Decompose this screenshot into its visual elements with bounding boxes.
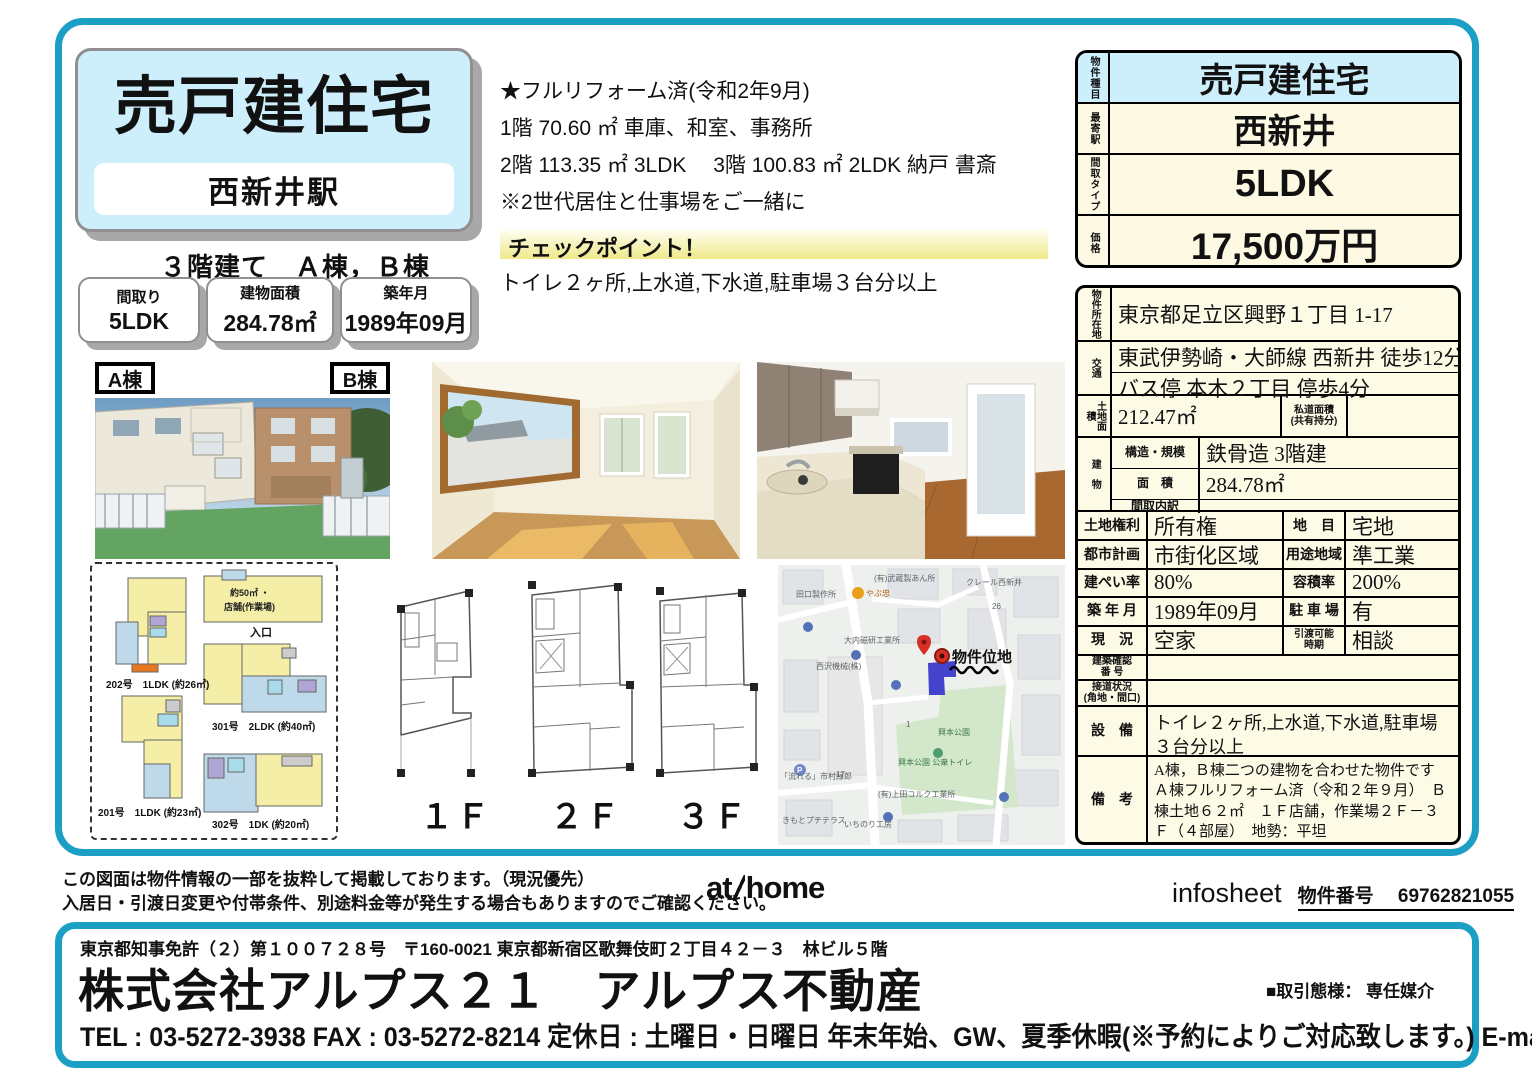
row-label: 交通 (1078, 342, 1112, 394)
land-rights: 所有権 (1148, 512, 1284, 539)
structure-value: 鉄骨造 3階建 (1200, 438, 1458, 468)
table-row: 接道状況 (角地・間口) (1078, 681, 1458, 707)
row-label: 土地権利 (1078, 512, 1148, 539)
disclaimer-line-1: この図面は物件情報の一部を抜粋して掲載しております。（現況優先） (62, 868, 776, 892)
photo-kitchen (757, 362, 1065, 559)
structure-label: 構造・規模 (1112, 438, 1200, 468)
infosheet-line: infosheet 物件番号 69762821055 (1172, 878, 1514, 911)
spec-value: 1989年09月 (345, 304, 468, 338)
checkpoint-banner: チェックポイント！ (500, 229, 1048, 259)
map-label: (有)上田コルク工業所 (878, 789, 955, 799)
table-row: 建ぺい率 80% 容積率 200% (1078, 570, 1458, 598)
spec-box-built: 築年月 1989年09月 (340, 277, 472, 343)
row-label: 用途地域 (1284, 541, 1346, 568)
row-label: 備 考 (1078, 757, 1148, 842)
exterior-photo-svg (95, 398, 390, 559)
row-label: 物件所在地 (1078, 288, 1112, 340)
row-label: 築 年 月 (1078, 598, 1148, 625)
feature-line: ★フルリフォーム済(令和2年9月) (500, 75, 1060, 112)
spec-value: 5LDK (109, 308, 169, 335)
confirm-number-label: 建築確認 番 号 (1078, 656, 1148, 680)
table-row: 設 備 トイレ２ヶ所,上水道,下水道,駐車場３台分以上 (1078, 707, 1458, 757)
photo-interior-room (432, 362, 740, 559)
row-label: 物件種目 (1078, 53, 1110, 102)
map-label: 26 (992, 602, 1001, 611)
road-contact (1148, 681, 1458, 705)
table-row: 築 年 月 1989年09月 駐 車 場 有 (1078, 598, 1458, 627)
floor-label-3f: ３Ｆ (677, 790, 749, 838)
table-row: 建 物 構造・規模 鉄骨造 3階建 面 積 284.78㎡ 間取内訳 (1078, 438, 1458, 512)
athome-logo: athome (706, 870, 824, 906)
disclaimer-line-2: 入居日・引渡日変更や付帯条件、別途料金等が発生する場合もありますのでご確認くださ… (62, 892, 776, 916)
table-row: 都市計画 市街化区域 用途地域 準工業 (1078, 541, 1458, 570)
station-box: 西新井駅 (94, 163, 454, 215)
table-row: 現 況 空家 引渡可能 時期 相談 (1078, 627, 1458, 656)
feature-list: ★フルリフォーム済(令和2年9月) 1階 70.60 ㎡ 車庫、和室、事務所 2… (500, 75, 1060, 297)
company-frame: 東京都知事免許（２）第１００７２８号 〒160-0021 東京都新宿区歌舞伎町２… (55, 922, 1479, 1068)
detail-table: 物件所在地 東京都足立区興野１丁目 1-17 交通 東武伊勢崎・大師線 西新井 … (1075, 285, 1461, 845)
use-district: 準工業 (1346, 541, 1458, 568)
table-row: 物件所在地 東京都足立区興野１丁目 1-17 (1078, 288, 1458, 342)
map-label: クレール西新井 (966, 577, 1022, 587)
area-value: 284.78㎡ (1200, 469, 1458, 499)
building-subrows: 構造・規模 鉄骨造 3階建 面 積 284.78㎡ 間取内訳 (1112, 438, 1458, 510)
photo-exterior: A棟 B棟 (95, 362, 390, 559)
row-label: 現 況 (1078, 627, 1148, 654)
infosheet-page: 売戸建住宅 西新井駅 ３階建て Ａ棟，Ｂ棟 間取り 5LDK 建物面積 284.… (0, 0, 1532, 1080)
feature-line: 2階 113.35 ㎡ 3LDK 3階 100.83 ㎡ 2LDK 納戸 書斎 (500, 149, 1060, 186)
building-a-tag: A棟 (95, 362, 155, 394)
spec-value: 284.78㎡ (223, 304, 316, 338)
map-label: 田口製作所 (796, 589, 836, 599)
spec-label: 間取り (116, 286, 161, 307)
contact-line: TEL : 03-5272-3938 FAX : 03-5272-8214 定休… (80, 1015, 1532, 1054)
remarks: A棟，Ｂ棟二つの建物を合わせた物件です Ａ棟フルリフォーム済（令和２年９月） Ｂ… (1148, 757, 1458, 842)
built-date: 1989年09月 (1148, 598, 1284, 625)
floor-plan-type: 5LDK (1110, 155, 1459, 214)
price-table: 物件種目 売戸建住宅 最寄駅 西新井 間取タイプ 5LDK 価格 17,500万… (1075, 50, 1462, 268)
room-photo-svg (432, 362, 740, 559)
title-block: 売戸建住宅 西新井駅 (75, 48, 473, 232)
current-status: 空家 (1148, 627, 1284, 654)
table-row: 土地面積 212.47㎡ 私道面積 (共有持分) (1078, 396, 1458, 438)
shop-caption: 約50㎡ ・ (230, 587, 270, 598)
table-row: 備 考 A棟，Ｂ棟二つの建物を合わせた物件です Ａ棟フルリフォーム済（令和２年９… (1078, 757, 1458, 842)
row-label: 地 目 (1284, 512, 1346, 539)
station-name: 西新井駅 (208, 167, 340, 212)
handover-label: 引渡可能 時期 (1284, 627, 1346, 654)
map-label: (有)武蔵製あん所 (874, 573, 935, 583)
map-label: 興本公園 公衆トイレ (898, 757, 972, 767)
coverage-ratio: 80% (1148, 570, 1284, 596)
disclaimer: この図面は物件情報の一部を抜粋して掲載しております。（現況優先） 入居日・引渡日… (62, 868, 776, 916)
row-label: 容積率 (1284, 570, 1346, 596)
access-lines: 東武伊勢崎・大師線 西新井 徒歩12分 バス停 本木２丁目 停歩4分 (1112, 342, 1461, 394)
building-b-tag: B棟 (330, 362, 390, 394)
feature-line: ※2世代居住と仕事場をご一緒に (500, 186, 1060, 223)
map-label: 西沢機械(株) (816, 661, 862, 671)
map-label: 興本公園 (938, 727, 970, 737)
athome-logo-home: home (746, 870, 825, 906)
land-area: 212.47㎡ (1112, 396, 1282, 436)
athome-logo-mark-icon (733, 875, 745, 901)
main-frame: 売戸建住宅 西新井駅 ３階建て Ａ棟，Ｂ棟 間取り 5LDK 建物面積 284.… (55, 18, 1479, 856)
floor-area-ratio: 200% (1346, 570, 1458, 596)
map-label: やぶ忠 (866, 589, 890, 598)
table-row: 価格 17,500万円 (1078, 216, 1459, 268)
spec-box-layout: 間取り 5LDK (78, 277, 200, 343)
map-property-label: 物件位地 (952, 648, 1012, 666)
row-label: 建ぺい率 (1078, 570, 1148, 596)
property-type: 売戸建住宅 (1110, 53, 1459, 102)
floor-label-1f: １Ｆ (420, 790, 492, 838)
parking: 有 (1346, 598, 1458, 625)
feature-line: 1階 70.60 ㎡ 車庫、和室、事務所 (500, 112, 1060, 149)
price-value: 17,500万円 (1110, 216, 1459, 268)
area-label: 面 積 (1112, 469, 1200, 499)
private-road-value (1348, 396, 1458, 436)
shop-caption: 店舗(作業場) (224, 601, 275, 612)
confirm-number (1148, 656, 1458, 680)
floor-label-2f: ２Ｆ (550, 790, 622, 838)
city-plan: 市街化区域 (1148, 541, 1284, 568)
row-label: 建 物 (1078, 438, 1112, 510)
private-road-label: 私道面積 (共有持分) (1282, 396, 1348, 436)
property-number: 物件番号 69762821055 (1298, 881, 1515, 911)
table-row: 最寄駅 西新井 (1078, 104, 1459, 155)
kitchen-photo-svg (757, 362, 1065, 559)
access-line-1: 東武伊勢崎・大師線 西新井 徒歩12分 (1112, 342, 1461, 372)
row-label: 駐 車 場 (1284, 598, 1346, 625)
property-address: 東京都足立区興野１丁目 1-17 (1112, 288, 1458, 340)
map-label: きもとプチテラス (782, 816, 846, 825)
row-label: 間取タイプ (1078, 155, 1110, 214)
unit-caption-202: 202号 1LDK (約26㎡) (106, 676, 209, 691)
transaction-type: ■取引態様： 専任媒介 (1266, 977, 1434, 1002)
table-row: 土地権利 所有権 地 目 宅地 (1078, 512, 1458, 541)
spec-label: 築年月 (383, 282, 428, 303)
map-label: 1 (906, 720, 911, 729)
floor-plan-3f-svg (650, 585, 765, 790)
map-label: 17 (836, 770, 845, 779)
spec-box-area: 建物面積 284.78㎡ (206, 277, 334, 343)
unit-caption-201: 201号 1LDK (約23㎡) (98, 804, 201, 819)
unit-caption-302: 302号 1DK (約20㎡) (212, 816, 309, 831)
checkpoint-body: トイレ２ヶ所,上水道,下水道,駐車場３台分以上 (500, 267, 1060, 297)
row-label: 価格 (1078, 216, 1110, 268)
location-map-svg: P 物件位地 (有)武蔵製あん所 田口製作所 やぶ忠 クレール西新井 大内磁研工… (778, 565, 1065, 845)
row-label: 最寄駅 (1078, 104, 1110, 153)
table-row: 間取タイプ 5LDK (1078, 155, 1459, 216)
page-title: 売戸建住宅 (78, 51, 470, 163)
floor-plan-1f-svg (395, 585, 510, 790)
row-label: 設 備 (1078, 707, 1148, 755)
company-name: 株式会社アルプス２１ アルプス不動産 (78, 955, 923, 1021)
map-label: いちのり工房 (844, 819, 892, 829)
unit-plans-svg: 約50㎡ ・ 店舗(作業場) (92, 564, 336, 836)
row-label: 都市計画 (1078, 541, 1148, 568)
athome-logo-at: at (706, 870, 732, 906)
equipment: トイレ２ヶ所,上水道,下水道,駐車場３台分以上 (1148, 707, 1458, 755)
row-label: 土地面積 (1078, 396, 1112, 436)
map-label: 大内磁研工業所 (844, 635, 900, 645)
unit-caption-entrance: 入口 (250, 624, 272, 640)
road-contact-label: 接道状況 (角地・間口) (1078, 681, 1148, 705)
table-row: 物件種目 売戸建住宅 (1078, 53, 1459, 104)
handover-timing: 相談 (1346, 627, 1458, 654)
nearest-station: 西新井 (1110, 104, 1459, 153)
floor-plan-2f-svg (520, 577, 640, 792)
unit-plans-box: 約50㎡ ・ 店舗(作業場) (90, 562, 338, 840)
land-category: 宅地 (1346, 512, 1458, 539)
infosheet-label: infosheet (1172, 878, 1282, 909)
unit-caption-301: 301号 2LDK (約40㎡) (212, 718, 315, 733)
table-row: 建築確認 番 号 (1078, 656, 1458, 682)
spec-label: 建物面積 (240, 282, 300, 303)
table-row: 交通 東武伊勢崎・大師線 西新井 徒歩12分 バス停 本木２丁目 停歩4分 (1078, 342, 1458, 396)
